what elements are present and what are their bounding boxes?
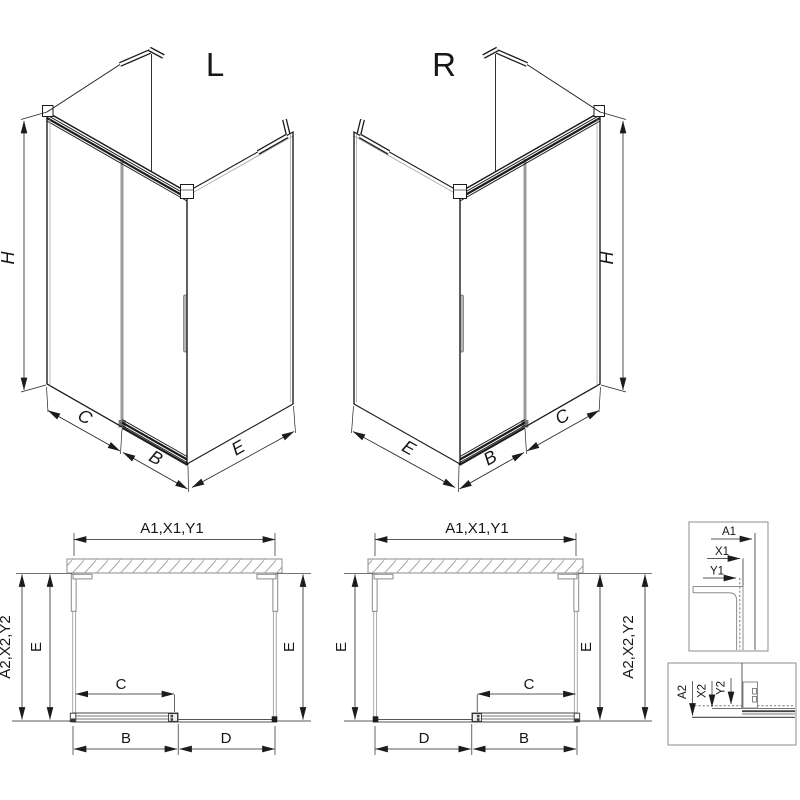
dim-e-left: E [333,573,373,721]
technical-drawing: H C B E L [0,0,800,800]
dim-label-e: E [228,436,249,460]
corner-piece [373,716,379,722]
dim-label-y1: Y1 [710,566,724,578]
floor-guide [185,462,188,465]
dim-label-e-left: E [333,642,350,652]
dim-label-e: E [399,436,420,460]
dim-label-b: B [480,446,500,469]
wall-profile [273,574,278,611]
front-glass-wall [460,112,600,464]
dim-label-h: H [0,251,18,265]
dim-label-b: B [146,446,166,469]
floor-guide [458,462,461,465]
dim-b-d: B D [73,724,275,755]
dim-label-a1: A1 [722,526,736,538]
variant-label-right: R [432,46,456,83]
dim-a2-right: E A2,X2,Y2 [578,573,652,721]
dim-c: C [76,676,175,712]
dim-label-e-left: E [28,642,45,652]
dim-label-e-right: E [281,642,298,652]
dim-label-c: C [524,676,535,693]
dim-e-right: E [277,573,311,721]
dim-c: C [477,676,575,712]
dim-a1: A1,X1,Y1 [74,520,275,556]
dim-h: H [597,112,626,392]
plan-view-left: A1,X1,Y1 A2,X2,Y2 E E C B [0,520,311,755]
wall-profile [257,574,276,579]
dim-label-a2: A2 [677,685,689,699]
door-track [70,713,277,722]
side-glass-panel [187,132,293,464]
dim-d-b: D B [375,724,577,755]
dim-label-y2: Y2 [716,681,728,695]
dim-a1: A1,X1,Y1 [375,520,576,556]
variant-label-left: L [206,46,224,83]
wall-section [67,559,282,573]
dim-label-d: D [221,730,232,747]
corner-piece [272,716,278,722]
dim-label-a2x2y2: A2,X2,Y2 [0,615,14,678]
dim-label-b: B [519,730,529,747]
dim-label-x1: X1 [715,546,729,558]
detail-view-top: A1 X1 Y1 [689,522,768,651]
dim-label-a1x1y1: A1,X1,Y1 [140,520,203,537]
corner-connector [181,185,194,199]
plan-view-right: A1,X1,Y1 E E A2,X2,Y2 C D [333,520,652,755]
wall-profile [558,574,577,579]
front-glass-wall [47,112,187,464]
wall-profile [71,574,76,611]
dim-h: H [0,112,47,392]
detail-frame [668,663,796,745]
wall-profile [372,574,377,611]
dim-label-d: D [419,730,430,747]
dim-label-h: H [597,251,617,265]
dim-label-x2: X2 [697,684,709,698]
dim-label-a2x2y2: A2,X2,Y2 [620,615,637,678]
dim-label-e-right: E [578,642,595,652]
dim-label-a1x1y1: A1,X1,Y1 [445,520,508,537]
dim-label-b: B [121,730,131,747]
wall-profile [73,574,92,579]
dim-label-c: C [116,676,127,693]
side-glass-panel [354,132,460,464]
iso-view-left: H C B E L [0,46,296,492]
door-track [373,713,580,722]
wall-section [368,559,583,573]
detail-view-bottom: A2 X2 Y2 [668,663,796,745]
wall-profile [574,574,579,611]
iso-view-right: H C B E R [352,46,627,492]
wall-profile [374,574,393,579]
corner-connector [454,185,467,199]
dim-a2-left: A2,X2,Y2 E [0,573,72,721]
